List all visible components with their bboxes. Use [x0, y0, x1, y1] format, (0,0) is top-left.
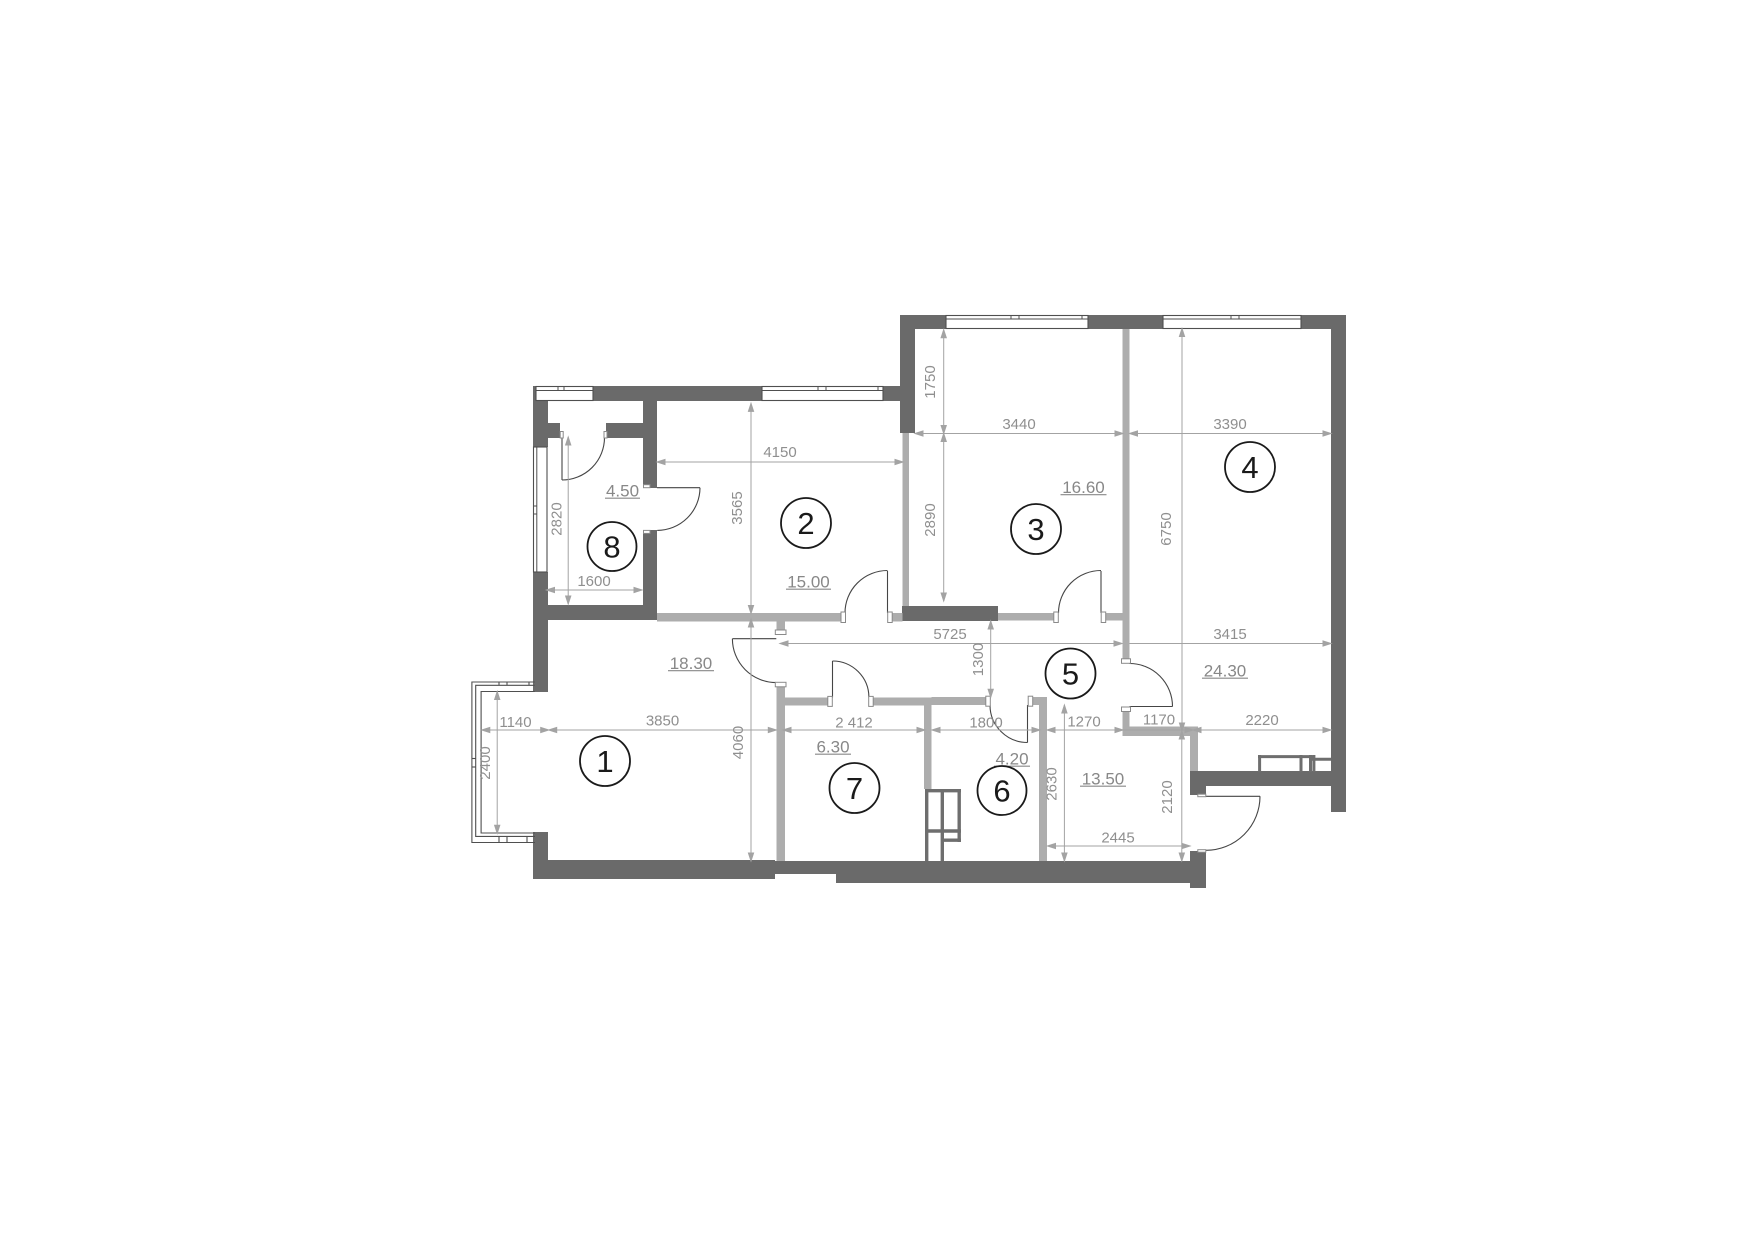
svg-text:3440: 3440: [1002, 416, 1035, 433]
svg-text:8: 8: [603, 530, 620, 565]
svg-text:6750: 6750: [1158, 512, 1175, 545]
svg-text:2400: 2400: [477, 746, 494, 779]
svg-text:2220: 2220: [1245, 712, 1278, 729]
svg-text:3850: 3850: [646, 713, 679, 730]
svg-text:2820: 2820: [549, 502, 566, 535]
svg-text:1270: 1270: [1067, 714, 1100, 731]
svg-text:1: 1: [596, 744, 613, 779]
svg-text:2 412: 2 412: [835, 715, 873, 732]
svg-text:4150: 4150: [763, 444, 796, 461]
svg-text:7: 7: [846, 771, 863, 806]
svg-text:4060: 4060: [730, 726, 747, 759]
svg-text:3390: 3390: [1213, 416, 1246, 433]
svg-text:5: 5: [1062, 657, 1079, 692]
svg-text:1140: 1140: [499, 714, 531, 731]
svg-text:2445: 2445: [1101, 830, 1134, 847]
svg-text:6: 6: [993, 774, 1010, 809]
svg-text:2890: 2890: [922, 503, 939, 536]
svg-text:2: 2: [797, 506, 814, 541]
svg-text:3: 3: [1027, 512, 1044, 547]
svg-text:2120: 2120: [1159, 780, 1176, 813]
svg-text:1800: 1800: [969, 715, 1002, 732]
svg-text:1170: 1170: [1143, 712, 1175, 729]
svg-text:5725: 5725: [933, 626, 966, 643]
svg-text:3415: 3415: [1213, 626, 1246, 643]
svg-text:1750: 1750: [922, 365, 939, 398]
svg-text:1300: 1300: [970, 643, 987, 676]
svg-text:1600: 1600: [577, 573, 610, 590]
svg-text:4: 4: [1241, 450, 1258, 485]
svg-text:3565: 3565: [729, 491, 746, 524]
svg-text:2630: 2630: [1044, 767, 1061, 800]
